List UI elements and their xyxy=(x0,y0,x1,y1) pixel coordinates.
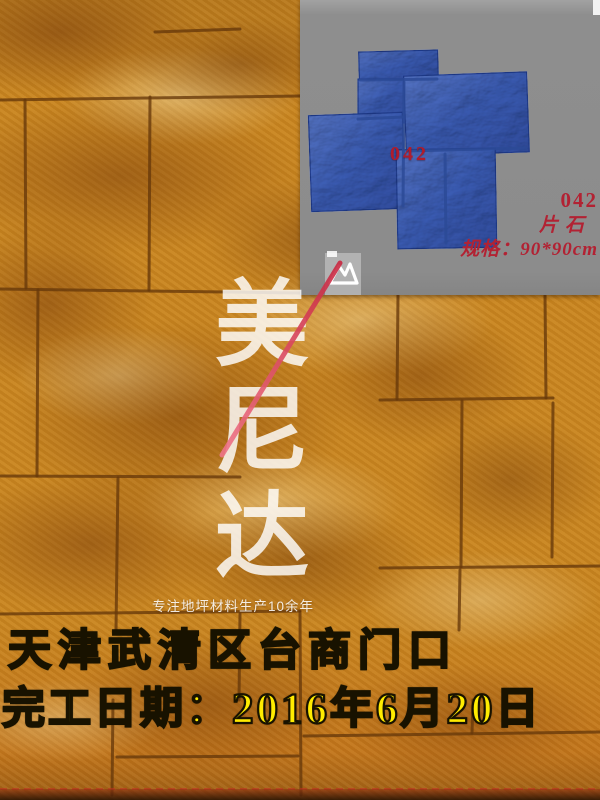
watermark-tagline: 专注地坪材料生产10余年 xyxy=(152,595,314,615)
photo-bottom-edge xyxy=(0,789,600,800)
caption-date: 完工日期：2016年6月20日 xyxy=(2,674,542,736)
mountain-logo-icon xyxy=(325,253,361,295)
mold-inset-image: 042 042 片石 规格：90*90cm xyxy=(300,0,600,295)
mold-pattern-name: 片石 xyxy=(539,210,591,237)
watermark-char: 美 xyxy=(212,272,312,378)
caption-location: 天津武清区台商门口 xyxy=(8,616,458,678)
brand-logo xyxy=(325,253,361,295)
logo-tab xyxy=(327,251,337,257)
watermark-char: 达 xyxy=(212,484,312,590)
mold-spec-label: 规格：90*90cm xyxy=(460,234,598,261)
corner-notch xyxy=(593,0,600,15)
photo-collage: 042 042 片石 规格：90*90cm 美 尼 达 专注地坪材料生产10余年… xyxy=(0,0,600,800)
brand-watermark: 美 尼 达 xyxy=(212,272,312,590)
mold-number-overlay: 042 xyxy=(390,143,429,166)
watermark-char: 尼 xyxy=(212,378,312,484)
